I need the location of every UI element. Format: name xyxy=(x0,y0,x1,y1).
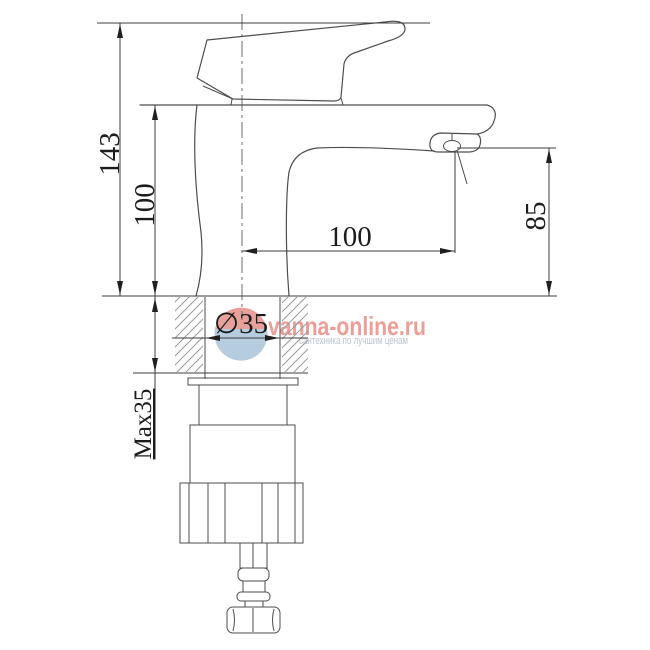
faucet-dimension-drawing: vanna-online.ru сантехника по лучшим цен… xyxy=(0,0,650,650)
faucet-outline xyxy=(140,21,495,296)
dimension-spout-reach: 100 xyxy=(242,152,455,254)
mounting-nut-ribs xyxy=(189,483,295,543)
aerator-outlet xyxy=(444,141,461,152)
dimension-outlet-height: 85 xyxy=(457,148,556,296)
dim-label-hole-diameter: ∅35 xyxy=(214,308,268,340)
connector-ring-lower xyxy=(237,592,270,601)
mounting-flange xyxy=(188,378,298,385)
dim-label-outlet-height: 85 xyxy=(520,202,552,231)
handle-collar-right xyxy=(341,98,343,105)
body-left-edge xyxy=(195,105,202,296)
under-counter-assembly xyxy=(180,378,303,633)
counter-hatch-left xyxy=(175,297,203,372)
counter-hatch-right xyxy=(282,297,308,372)
handle-lever xyxy=(197,21,405,101)
connector-ring-upper xyxy=(238,568,269,581)
dim-label-total-height: 143 xyxy=(94,132,126,176)
technical-drawing-canvas: vanna-online.ru сантехника по лучшим цен… xyxy=(0,0,650,650)
dimension-total-height: 143 xyxy=(94,23,430,296)
watermark-tagline-text: сантехника по лучшим ценам xyxy=(299,335,408,347)
dimension-body-height: 100 xyxy=(129,105,161,296)
shank-cylinder-lower xyxy=(190,425,295,483)
dim-label-max-thickness: Max35 xyxy=(130,389,157,460)
mounting-nut xyxy=(180,483,303,543)
dimension-max-thickness: Max35 xyxy=(130,296,158,459)
shank-cylinder-upper xyxy=(199,385,287,425)
handle-cap-inner-edge xyxy=(203,86,233,99)
connector-neck xyxy=(243,581,265,592)
spout-front-face xyxy=(477,105,495,134)
dim-label-spout-reach: 100 xyxy=(328,221,372,253)
dim-label-body-height: 100 xyxy=(129,183,161,227)
aerator-housing xyxy=(430,133,481,152)
hose-hex-nut xyxy=(227,607,280,633)
outlet-leader-line xyxy=(457,150,467,184)
handle-collar-left xyxy=(231,99,232,105)
connector-neck-lower xyxy=(245,601,263,607)
